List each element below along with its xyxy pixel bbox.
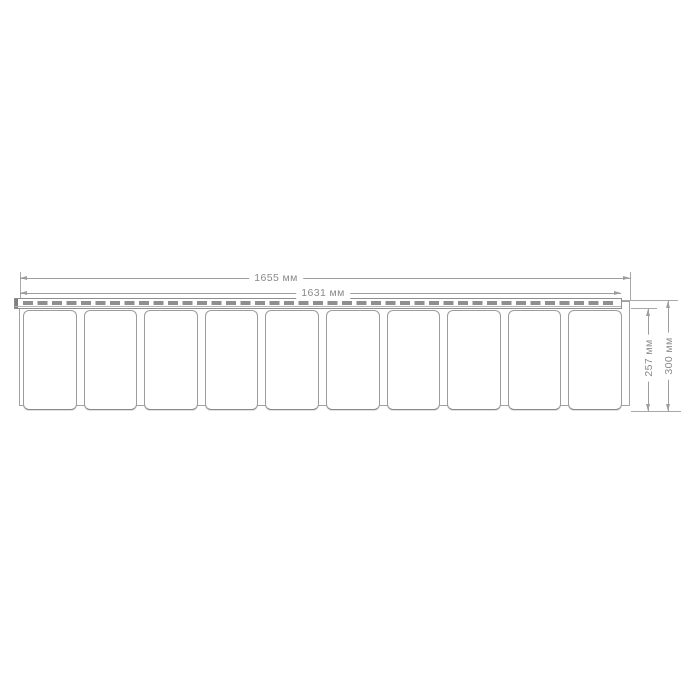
extension-line-right — [630, 272, 631, 301]
panel-section — [387, 310, 441, 410]
dimension-label-overall-width: 1655 мм — [249, 272, 303, 284]
arrowhead-right — [614, 291, 621, 295]
arrowhead-left — [20, 276, 27, 280]
extension-line-overall-height-top — [622, 300, 678, 301]
arrowhead-left — [20, 291, 27, 295]
arrowhead-up — [646, 309, 650, 316]
arrowhead-right — [623, 276, 630, 280]
arrowhead-up — [666, 301, 670, 308]
nail-slot-perforations — [23, 301, 617, 305]
arrowhead-down — [666, 404, 670, 411]
dimension-line-overall-width — [20, 278, 630, 279]
dimension-label-inner-width: 1631 мм — [296, 287, 350, 299]
panel-section — [23, 310, 77, 410]
dimension-label-panel-height: 257 мм — [643, 334, 655, 381]
arrowhead-down — [646, 404, 650, 411]
panel-section — [205, 310, 259, 410]
extension-line-panel-height-top — [631, 308, 657, 309]
panel-dimension-drawing: 1655 мм 1631 мм 257 мм 300 мм — [0, 0, 700, 700]
panel-section — [84, 310, 138, 410]
panel-sections-row — [23, 310, 622, 410]
panel-section — [508, 310, 562, 410]
extension-line-bottom — [631, 411, 681, 412]
panel-section — [447, 310, 501, 410]
nail-hem-strip — [14, 298, 622, 309]
dimension-label-overall-height: 300 мм — [663, 332, 675, 379]
strip-inner-line — [15, 306, 621, 307]
panel-section — [144, 310, 198, 410]
panel-section — [265, 310, 319, 410]
panel-section — [568, 310, 622, 410]
panel-section — [326, 310, 380, 410]
